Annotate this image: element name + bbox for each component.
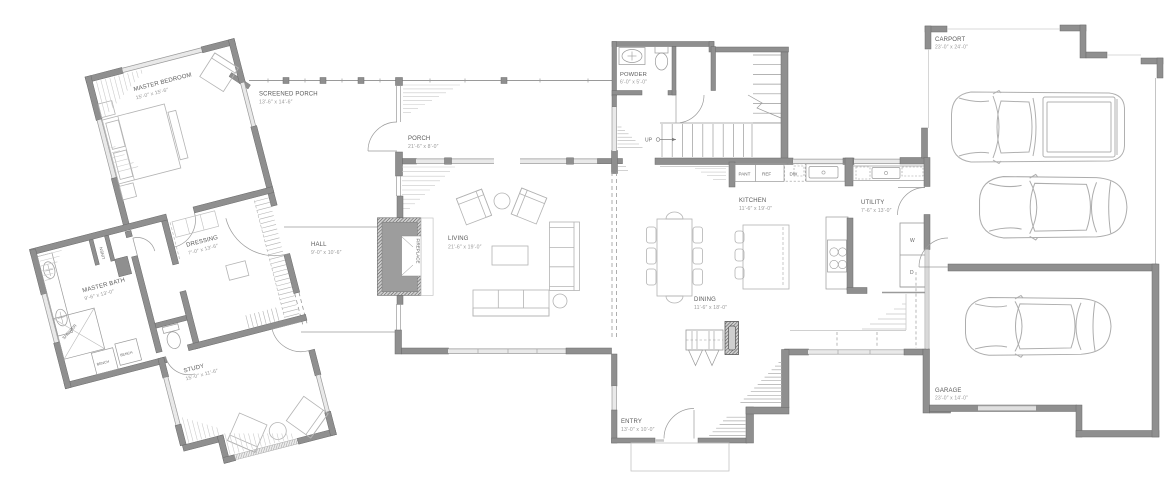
svg-text:HALL: HALL [311, 242, 327, 248]
svg-text:ENTRY: ENTRY [621, 419, 642, 425]
svg-text:23′-0″ x 24′-0″: 23′-0″ x 24′-0″ [935, 45, 968, 51]
svg-text:6′-0″ x 5′-0″: 6′-0″ x 5′-0″ [620, 80, 647, 86]
svg-text:FIREPLACE: FIREPLACE [416, 239, 421, 264]
svg-text:CARPORT: CARPORT [935, 37, 965, 43]
svg-text:13′-6″ x 14′-6″: 13′-6″ x 14′-6″ [259, 100, 293, 106]
svg-text:7′-6″ x 13′-0″: 7′-6″ x 13′-0″ [861, 208, 892, 214]
svg-text:PORCH: PORCH [408, 136, 430, 142]
svg-text:PANT: PANT [739, 172, 751, 177]
svg-text:UTILITY: UTILITY [861, 200, 884, 206]
svg-text:11′-6″ x 19′-0″: 11′-6″ x 19′-0″ [739, 206, 772, 212]
svg-text:LIVING: LIVING [448, 236, 469, 242]
svg-text:21′-6″ x 19′-0″: 21′-6″ x 19′-0″ [448, 245, 482, 251]
svg-text:SCREENED PORCH: SCREENED PORCH [259, 92, 318, 98]
svg-text:DW: DW [790, 172, 798, 177]
svg-text:KITCHEN: KITCHEN [739, 198, 766, 204]
svg-text:11′-6″ x 18′-0″: 11′-6″ x 18′-0″ [694, 305, 727, 311]
svg-text:D: D [910, 270, 914, 276]
svg-text:UP: UP [645, 138, 653, 144]
svg-text:23′-0″ x 14′-0″: 23′-0″ x 14′-0″ [935, 396, 968, 402]
svg-text:POWDER: POWDER [620, 72, 647, 78]
svg-text:DINING: DINING [694, 297, 716, 303]
svg-text:13′-0″ x 10′-0″: 13′-0″ x 10′-0″ [621, 427, 655, 433]
svg-text:GARAGE: GARAGE [935, 388, 962, 394]
svg-text:9′-0″ x 10′-6″: 9′-0″ x 10′-6″ [311, 250, 342, 256]
svg-text:W: W [910, 238, 915, 244]
svg-text:REF: REF [762, 172, 771, 177]
svg-text:21′-6″ x 8′-0″: 21′-6″ x 8′-0″ [408, 144, 439, 150]
